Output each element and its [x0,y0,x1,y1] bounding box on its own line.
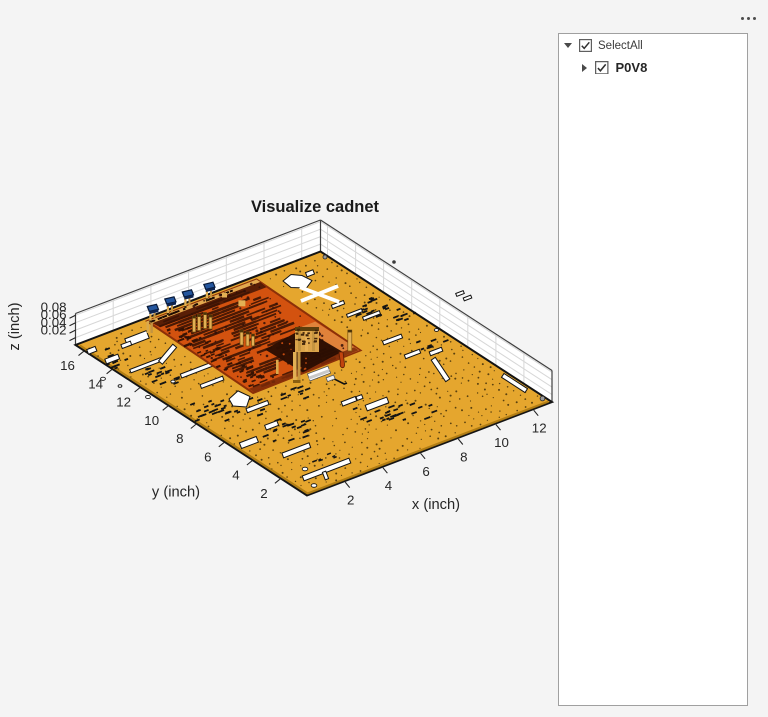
svg-text:4: 4 [385,478,392,493]
svg-text:Visualize cadnet: Visualize cadnet [251,198,380,216]
svg-text:y (inch): y (inch) [152,485,200,501]
svg-text:4: 4 [232,468,239,483]
svg-text:14: 14 [88,376,103,391]
svg-text:0.02: 0.02 [41,323,67,338]
svg-text:z (inch): z (inch) [7,302,23,350]
svg-text:12: 12 [532,421,547,436]
svg-text:12: 12 [116,395,131,410]
svg-text:8: 8 [460,450,467,465]
svg-text:6: 6 [204,449,211,464]
svg-text:8: 8 [176,431,183,446]
svg-text:6: 6 [422,464,429,479]
svg-text:2: 2 [260,486,267,501]
svg-text:2: 2 [347,493,354,508]
svg-text:10: 10 [494,435,509,450]
svg-text:x (inch): x (inch) [412,497,460,513]
svg-text:16: 16 [60,358,75,373]
svg-text:10: 10 [144,413,159,428]
